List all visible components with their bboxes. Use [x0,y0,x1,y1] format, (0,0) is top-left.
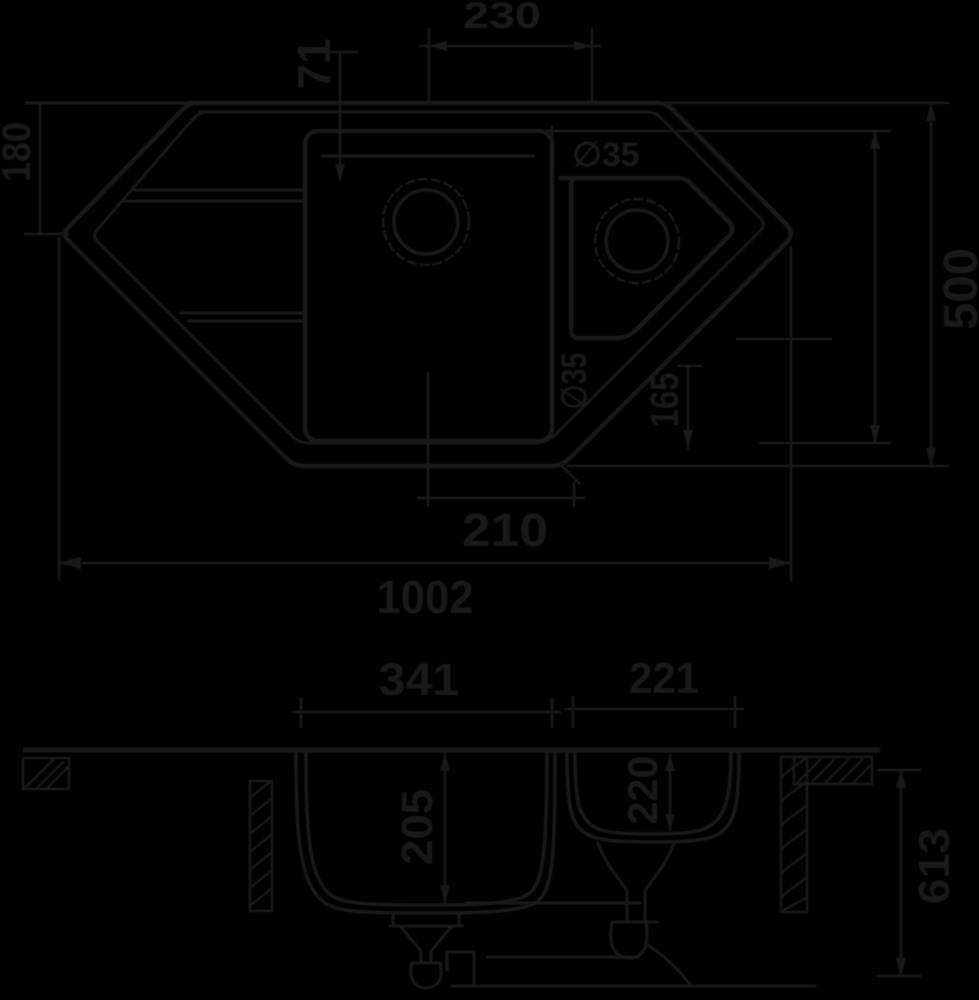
svg-text:1002: 1002 [377,571,474,623]
svg-text:∅35: ∅35 [555,353,594,410]
svg-text:230: 230 [463,0,541,36]
svg-text:165: 165 [643,373,687,428]
svg-text:500: 500 [935,248,979,330]
svg-text:341: 341 [379,654,460,705]
svg-text:71: 71 [288,38,340,89]
svg-text:613: 613 [910,828,959,904]
svg-text:180: 180 [0,122,39,182]
svg-text:220: 220 [619,756,666,825]
svg-text:221: 221 [629,654,699,703]
svg-text:210: 210 [462,504,548,556]
svg-text:205: 205 [393,789,442,865]
svg-text:∅35: ∅35 [572,136,639,174]
